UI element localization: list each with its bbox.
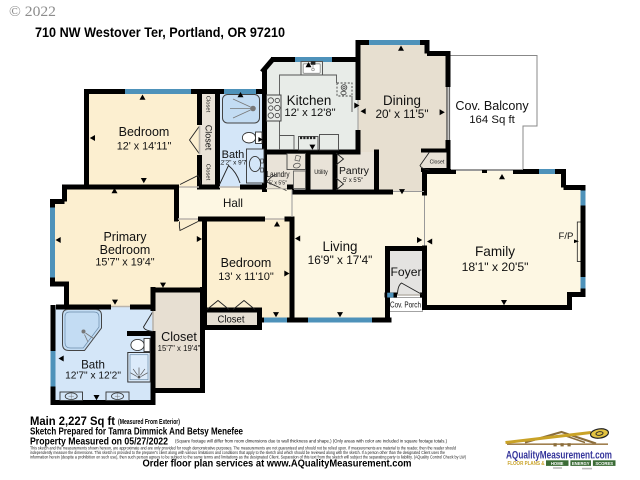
svg-text:Bedroom: Bedroom <box>100 243 151 257</box>
svg-text:12' x 12'8": 12' x 12'8" <box>284 107 335 119</box>
svg-text:Cov. Porch: Cov. Porch <box>390 301 421 310</box>
svg-text:Closet: Closet <box>205 164 211 181</box>
svg-text:Closet: Closet <box>161 330 197 344</box>
svg-text:ENERGY: ENERGY <box>572 461 590 466</box>
svg-text:710 NW Westover Ter, Portland,: 710 NW Westover Ter, Portland, OR 97210 <box>35 25 285 40</box>
svg-text:Closet: Closet <box>218 315 245 326</box>
svg-text:Family: Family <box>475 244 515 259</box>
svg-text:5' x 5'5": 5' x 5'5" <box>343 178 363 184</box>
svg-text:Bedroom: Bedroom <box>221 256 272 270</box>
svg-text:(Measured From Exterior): (Measured From Exterior) <box>118 417 180 426</box>
svg-text:5' x 5'5": 5' x 5'5" <box>269 181 287 187</box>
svg-text:Closet: Closet <box>204 125 214 151</box>
svg-text:SCORES: SCORES <box>595 461 613 466</box>
svg-text:18'1" x 20'5": 18'1" x 20'5" <box>462 260 529 274</box>
svg-text:12'2" x 9'7": 12'2" x 9'7" <box>217 160 249 167</box>
svg-text:(Square footage will differ fr: (Square footage will differ from room di… <box>175 439 447 445</box>
svg-text:Order floor plan services at w: Order floor plan services at www.AQualit… <box>143 459 412 470</box>
svg-text:Kitchen: Kitchen <box>287 93 332 108</box>
svg-text:Cov. Balcony: Cov. Balcony <box>455 99 529 113</box>
svg-text:FLOOR PLANS &: FLOOR PLANS & <box>508 461 545 467</box>
svg-text:Closet: Closet <box>205 96 211 113</box>
svg-text:164 Sq ft: 164 Sq ft <box>469 114 515 126</box>
svg-text:12'7" x 12'2": 12'7" x 12'2" <box>65 371 121 382</box>
svg-text:15'7" x 19'4": 15'7" x 19'4" <box>95 257 154 269</box>
svg-text:Foyer: Foyer <box>391 265 422 279</box>
svg-text:12' x 14'11": 12' x 14'11" <box>117 141 172 153</box>
svg-text:Hall: Hall <box>223 197 243 210</box>
svg-text:Closet: Closet <box>430 160 445 166</box>
svg-text:15'7" x 19'4": 15'7" x 19'4" <box>158 344 201 353</box>
svg-text:Pantry: Pantry <box>339 166 369 177</box>
svg-text:Living: Living <box>323 239 358 254</box>
svg-text:20' x 11'5": 20' x 11'5" <box>375 107 428 121</box>
svg-text:Bedroom: Bedroom <box>119 125 170 139</box>
svg-text:16'9" x 17'4": 16'9" x 17'4" <box>308 253 373 267</box>
svg-text:AQualityMeasurement.com: AQualityMeasurement.com <box>506 450 612 462</box>
svg-text:Primary: Primary <box>103 230 147 244</box>
svg-text:Dining: Dining <box>383 93 421 108</box>
svg-text:Utility: Utility <box>314 169 328 176</box>
svg-text:F/P: F/P <box>559 231 574 242</box>
svg-text:HOME: HOME <box>551 461 564 466</box>
svg-text:13' x 11'10": 13' x 11'10" <box>218 271 274 283</box>
svg-text:Laundry: Laundry <box>267 169 291 179</box>
svg-text:© 2022: © 2022 <box>9 4 56 20</box>
